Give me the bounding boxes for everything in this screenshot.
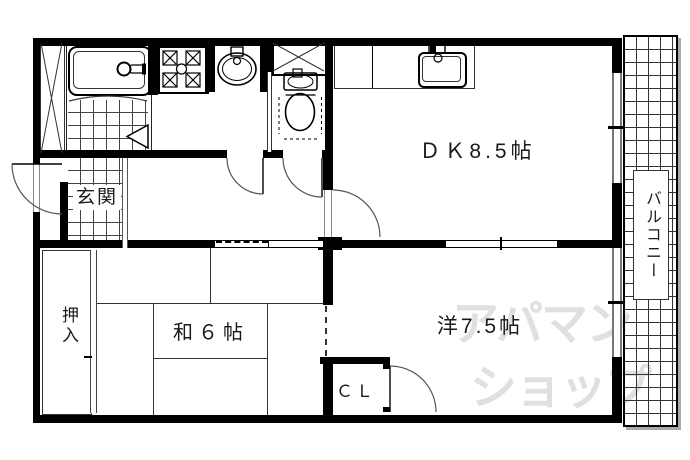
sliding-door-dashed-panel	[216, 241, 268, 246]
kitchen-sink-inner	[422, 56, 461, 82]
wall-toilet-right	[325, 42, 333, 158]
washbasin-icon	[218, 47, 256, 85]
tatami-line-v2	[153, 303, 154, 415]
storage-x-icon	[272, 42, 329, 76]
wall-rooms-c	[557, 240, 612, 248]
wall-rooms-b	[337, 240, 446, 248]
tatami-line-v1	[210, 248, 211, 304]
bathtub-inner	[73, 51, 145, 89]
balcony-label-box: バルコニー	[633, 170, 669, 300]
counter-divider	[372, 46, 373, 88]
cl-jamb-bottom	[383, 407, 390, 412]
wall-mid-a	[33, 150, 227, 158]
tatami-line-v3	[267, 303, 268, 415]
toilet-icon	[279, 69, 322, 139]
room-label-oshiire: 押入	[56, 306, 81, 346]
window-tick-2	[608, 301, 624, 304]
room-label-dk: ＤＫ8.5帖	[400, 135, 555, 165]
wall-right-seg1	[612, 38, 622, 73]
wall-toilet-left-lower	[267, 72, 272, 152]
room-label-washitsu: 和６帖	[158, 316, 263, 345]
wall-right-seg3	[612, 357, 622, 423]
wall-washitsu-east-a	[323, 248, 333, 305]
room-label-youshitsu: 洋7.5帖	[415, 310, 545, 340]
room-label-genkan: 玄関	[73, 185, 121, 210]
wall-left-upper	[33, 38, 40, 164]
wall-bottom	[33, 415, 622, 423]
window-tick-1	[608, 126, 624, 129]
stove-icon	[158, 46, 209, 94]
genkan-edge-line	[122, 158, 128, 248]
wall-mid-b	[263, 150, 283, 158]
room-label-closet: ＣＬ	[334, 377, 378, 402]
pipe-space-x-icon	[40, 42, 65, 156]
wall-dk-hall	[323, 158, 333, 190]
wall-cl-top	[320, 357, 390, 364]
floor-plan: アパマン ショップ	[0, 0, 690, 460]
wall-right-seg2	[612, 183, 622, 248]
sliding-door-divider	[268, 240, 269, 248]
wall-bath-kitchen	[148, 42, 158, 95]
wall-sink-left	[205, 42, 215, 92]
fusuma-door	[90, 250, 97, 413]
wall-dashed-segment	[325, 306, 327, 356]
toilet-door-arc	[283, 158, 322, 197]
kitchen-door-arc	[227, 158, 263, 194]
cl-jamb-top	[383, 364, 390, 369]
dk-door-jamb	[324, 190, 332, 237]
dk-door-arc	[333, 190, 380, 237]
sliding-door-tick	[500, 237, 502, 250]
fusuma-tick	[84, 356, 92, 358]
cl-door-arc	[390, 366, 436, 412]
wall-genkan-stub	[60, 182, 68, 248]
wall-toilet-left-upper	[267, 42, 272, 72]
balcony-label: バルコニー	[639, 190, 663, 280]
entry-door-jamb	[33, 164, 40, 212]
tatami-line-h2	[153, 358, 268, 359]
wall-washitsu-east-b	[323, 357, 333, 415]
